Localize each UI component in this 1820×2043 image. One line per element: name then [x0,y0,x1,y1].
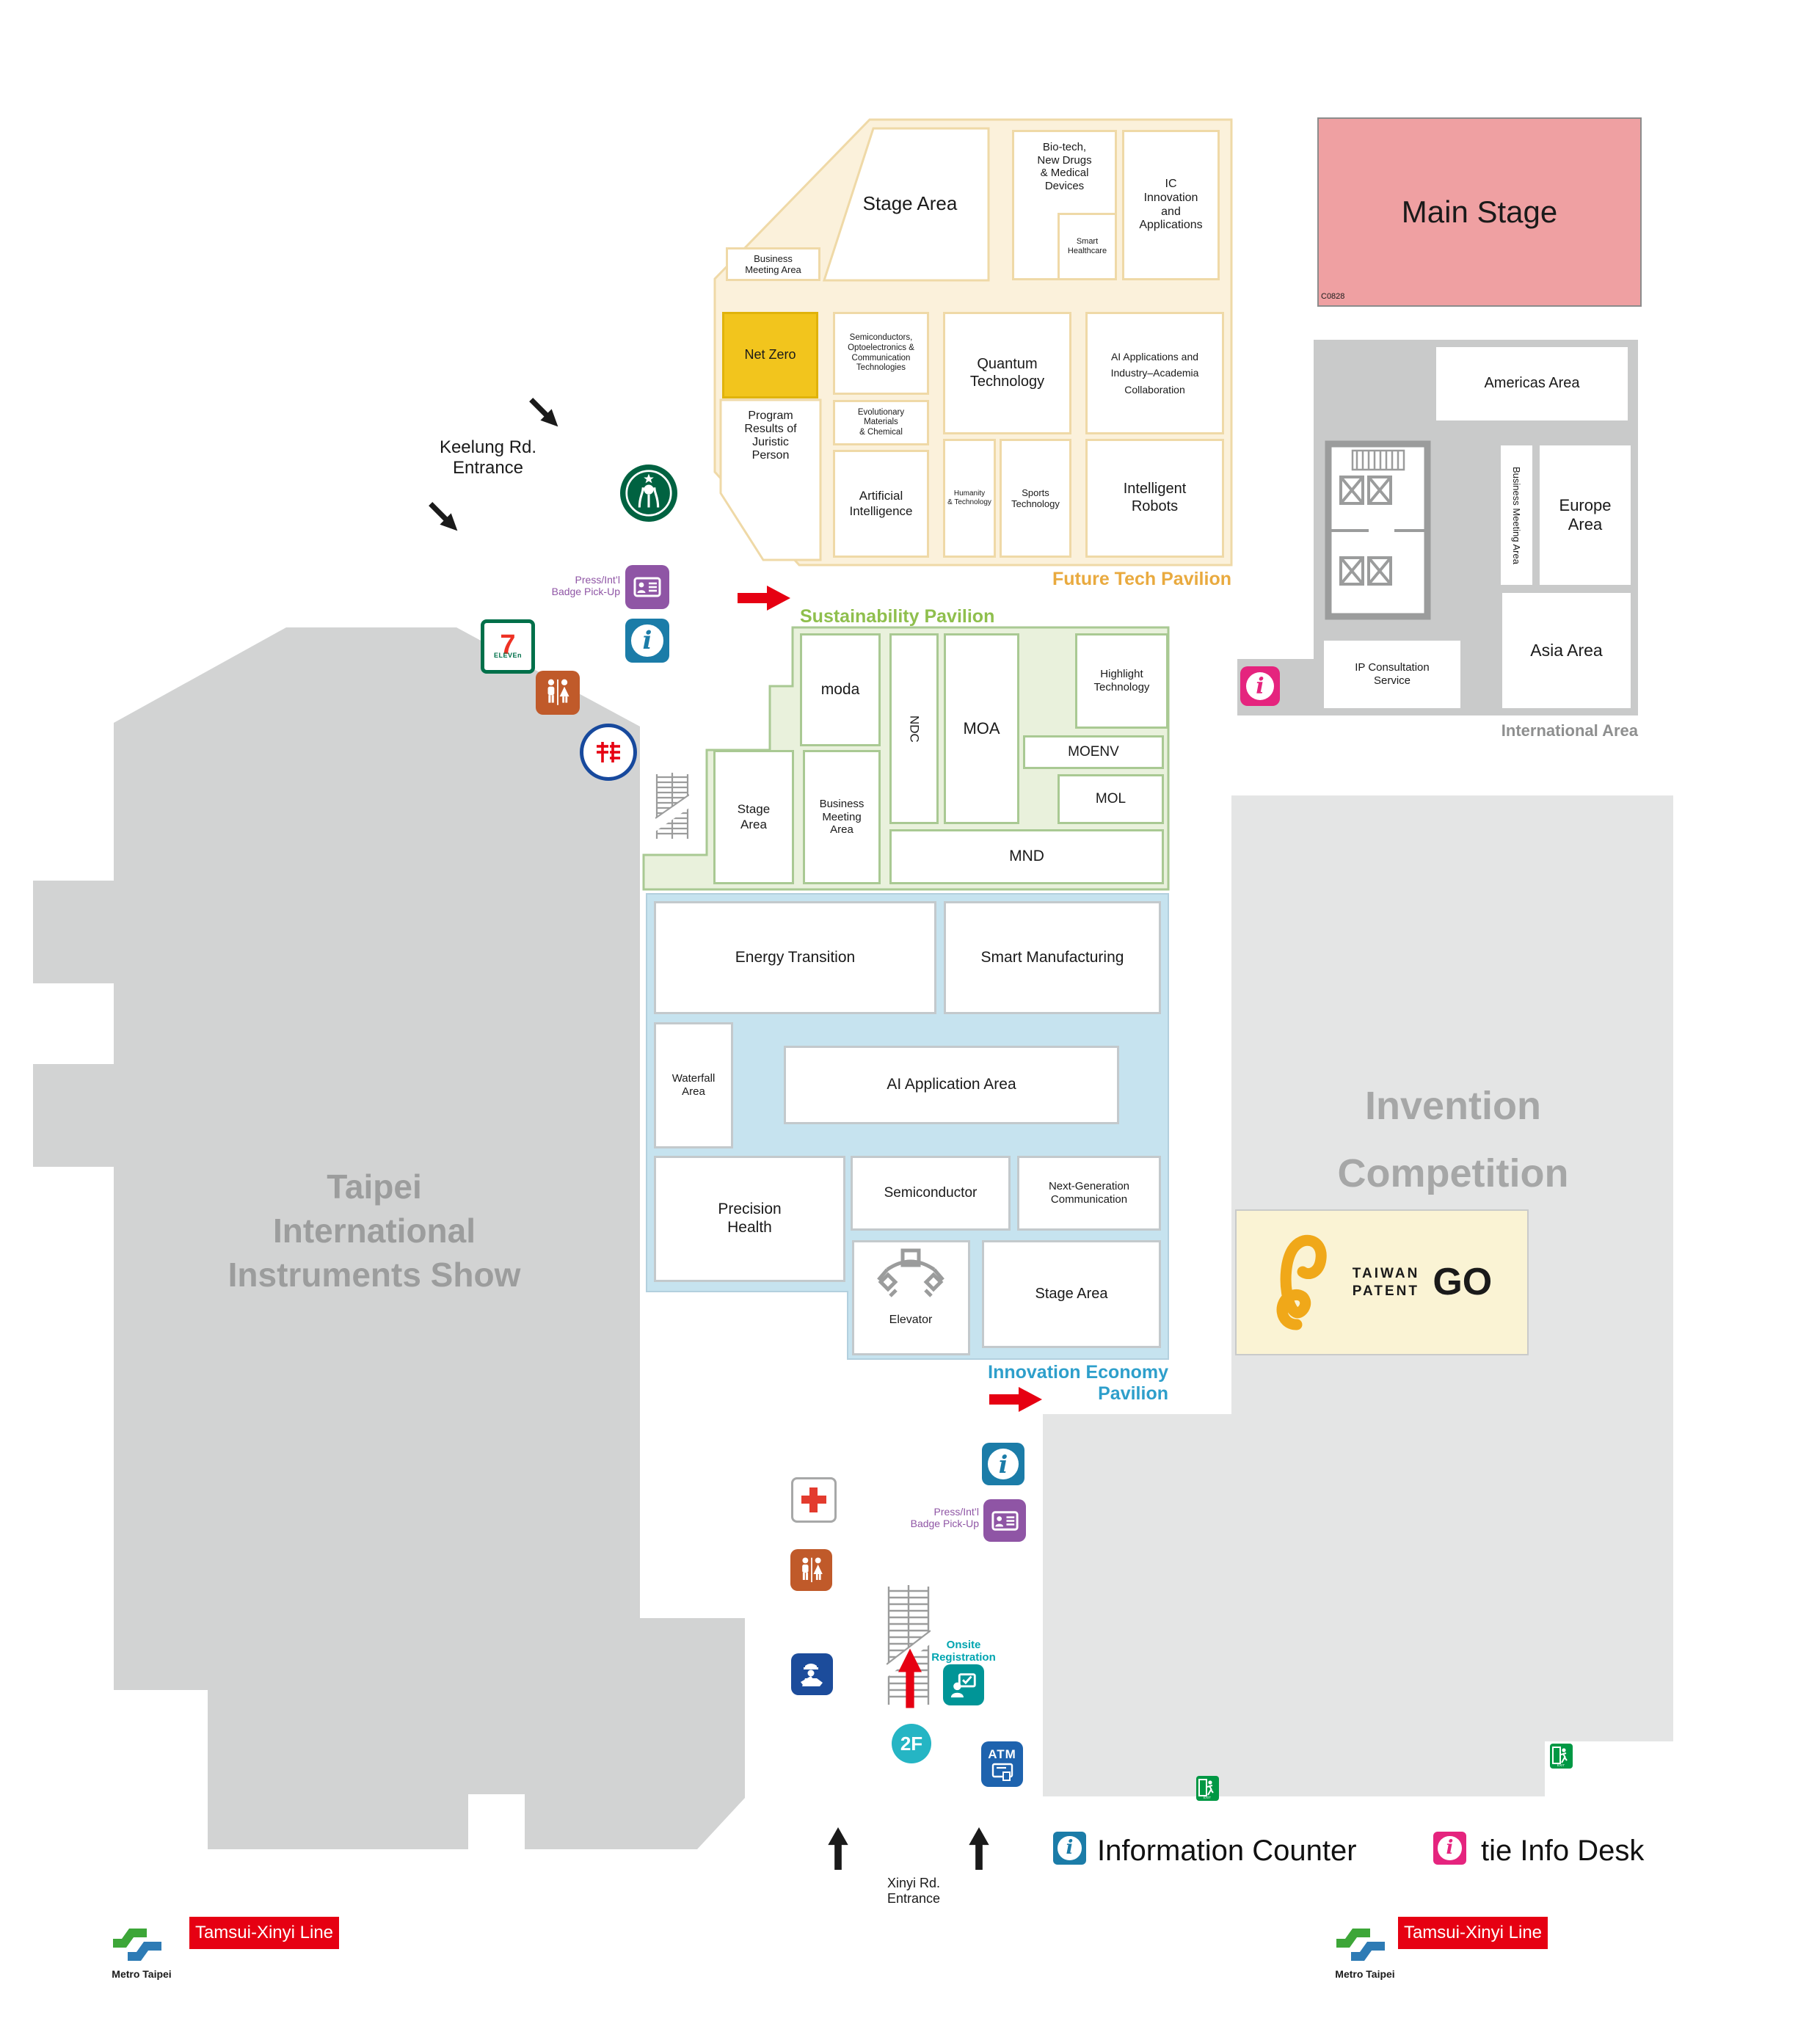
ic-innovation-area: IC Innovation and Applications [1122,130,1220,280]
badge-pickup-icon-upper [625,565,669,609]
tie-info-desk-icon: i [1240,666,1280,706]
taiwan-patent-go: TAIWAN PATENT GO [1235,1209,1529,1355]
keelung-entrance-label: Keelung Rd. Entrance [400,437,576,478]
semiconductor-area: Semiconductor [851,1156,1011,1231]
metro-taipei-logo-left [109,1923,170,1967]
police-icon [791,1653,833,1695]
mnd-area: MND [889,829,1164,884]
seven-eleven-logo: 7 ELEVEn [481,619,535,674]
metro-taipei-logo-right [1332,1923,1394,1967]
smart-manufacturing-area: Smart Manufacturing [944,901,1161,1014]
moenv-area: MOENV [1023,735,1164,769]
humanity-technology-area: Humanity & Technology [943,439,996,558]
sustainability-business-meeting-area: Business Meeting Area [803,750,881,884]
moda-area: moda [800,633,881,746]
metro-taipei-label-right: Metro Taipei [1325,1968,1405,1980]
international-area-label: International Area [1460,721,1638,740]
stairs-icon-upper [655,773,689,840]
info-icon-upper: i [625,619,669,663]
artificial-intelligence-area: Artificial Intelligence [833,450,929,558]
xinyi-arrow-left [826,1827,850,1870]
sustainability-label: Sustainability Pavilion [800,606,1020,627]
xinyi-entrance-label: Xinyi Rd. Entrance [866,1876,961,1907]
badge-pickup-label-upper: Press/Int’l Badge Pick-Up [532,574,620,597]
asia-area: Asia Area [1502,593,1631,708]
semiconductors-area: Semiconductors, Optoelectronics & Commun… [833,312,929,395]
patent-go-go: GO [1433,1260,1492,1305]
patent-go-patent: PATENT [1353,1283,1419,1300]
program-results-area: Program Results of Juristic Person [722,409,819,462]
elevator-label: Elevator [867,1314,955,1327]
floor-2f-badge: 2F [892,1724,931,1763]
quantum-area: Quantum Technology [943,312,1071,434]
innovation-stage-area: Stage Area [982,1240,1161,1348]
future-stage-area: Stage Area [840,192,980,215]
main-stage: Main Stage [1317,117,1642,307]
tamsui-xinyi-line-right: Tamsui-Xinyi Line [1398,1917,1548,1949]
xinyi-arrow-right [967,1827,991,1870]
innovation-arrow [989,1387,1042,1412]
sustainability-arrow [738,586,790,611]
intelligent-robots-area: Intelligent Robots [1085,439,1224,558]
seven-eleven-word: ELEVEn [494,652,522,659]
legend-tie-info-desk-label: tie Info Desk [1481,1835,1644,1868]
badge-pickup-icon-lower [983,1499,1026,1542]
intl-business-meeting-area: Business Meeting Area [1501,445,1532,585]
waterfall-area: Waterfall Area [654,1022,733,1148]
onsite-registration-icon [943,1664,984,1705]
info-icon-lower: i [982,1443,1024,1485]
atm-label: ATM [988,1747,1016,1762]
metro-taipei-label-left: Metro Taipei [101,1968,182,1980]
ai-industry-area: AI Applications and Industry–Academia Co… [1085,312,1224,434]
floor-2f-label: 2F [900,1733,922,1755]
moa-area: MOA [944,633,1019,824]
first-aid-icon [791,1477,837,1523]
post-office-logo [580,724,637,781]
energy-transition-area: Energy Transition [654,901,936,1014]
restroom-icon-upper [536,671,580,715]
legend-tie-info-desk-icon: i [1433,1832,1466,1865]
invention-competition-label: Invention Competition [1248,1073,1659,1208]
starbucks-logo [620,465,677,522]
ai-application-area: AI Application Area [784,1046,1119,1124]
next-generation-communication-area: Next-Generation Communication [1017,1156,1161,1231]
sustainability-stage-area: Stage Area [713,750,794,884]
main-stage-booth-code: C0828 [1321,292,1344,301]
evolutionary-area: Evolutionary Materials & Chemical [833,400,929,445]
svg-text:EXIT: EXIT [1557,1763,1565,1767]
ndc-area: NDC [889,633,939,824]
americas-area: Americas Area [1436,347,1628,420]
innovation-label: Innovation Economy Pavilion [948,1362,1168,1405]
exit-icon-right: EXIT [1550,1744,1573,1769]
tamsui-xinyi-line-left: Tamsui-Xinyi Line [189,1917,339,1949]
registration-up-arrow [898,1648,922,1708]
precision-health-area: Precision Health [654,1156,845,1282]
exit-text: EXIT [1204,1796,1211,1799]
highlight-technology-area: Highlight Technology [1075,633,1168,729]
patent-go-logo [1272,1228,1339,1338]
mol-area: MOL [1058,774,1164,824]
future-tech-label: Future Tech Pavilion [1020,569,1231,590]
main-stage-label: Main Stage [1402,194,1557,230]
onsite-registration-label: Onsite Registration [923,1639,1004,1664]
elevator-icon [874,1246,947,1299]
future-business-meeting-area: Business Meeting Area [726,247,820,281]
sports-technology-area: Sports Technology [1000,439,1071,558]
intl-elevator-core [1325,440,1431,620]
restroom-icon-lower [790,1549,832,1591]
legend-information-counter-icon: i [1053,1832,1086,1865]
net-zero-area: Net Zero [722,312,818,398]
instruments-show-label: Taipei International Instruments Show [132,1165,616,1297]
exit-icon-left: EXIT [1196,1776,1219,1801]
exhibition-floor-map: Stage Area Business Meeting Area Bio-tec… [0,0,1820,2043]
europe-area: Europe Area [1540,445,1631,585]
smart-healthcare-area: Smart Healthcare [1058,213,1117,280]
ip-consultation-area: IP Consultation Service [1324,641,1460,708]
patent-go-taiwan: TAIWAN [1353,1265,1420,1283]
legend-information-counter-label: Information Counter [1097,1835,1357,1868]
badge-pickup-label-lower: Press/Int’l Badge Pick-Up [901,1506,979,1529]
atm-icon: ATM [981,1741,1023,1787]
